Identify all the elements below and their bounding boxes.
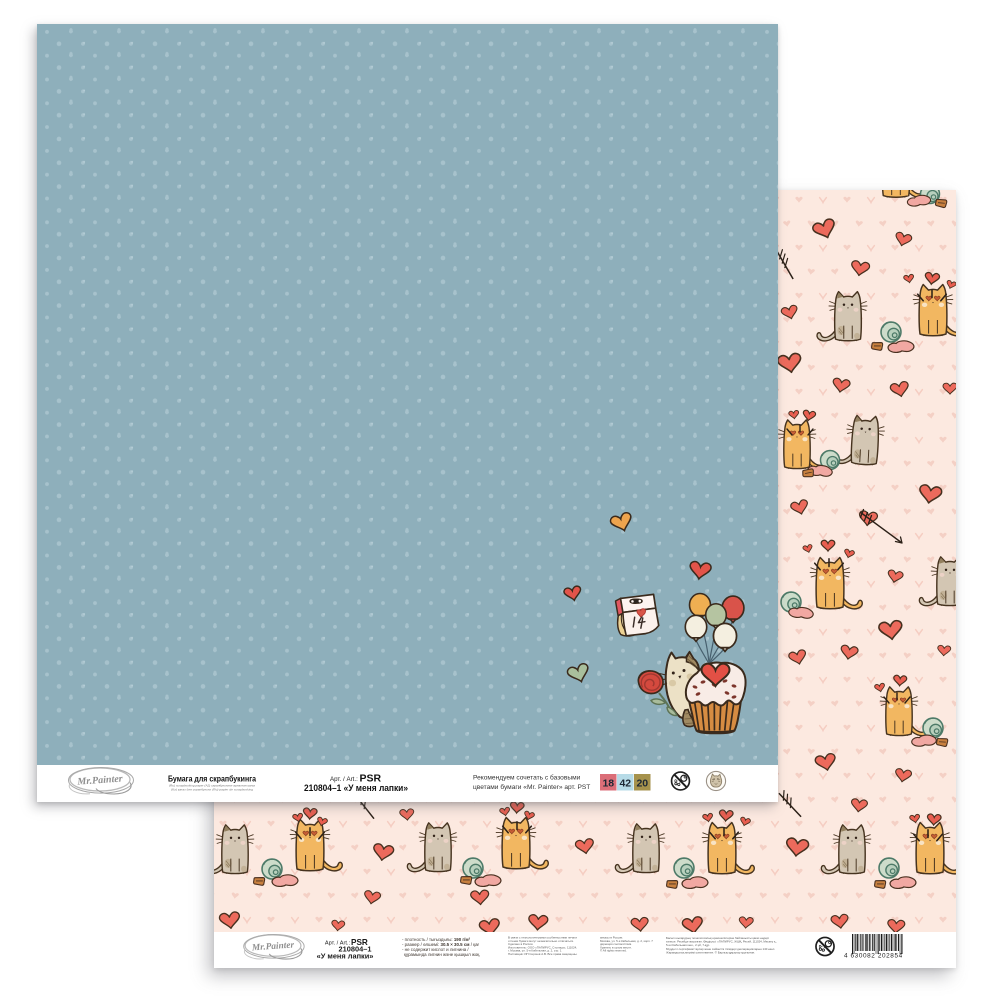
svg-text:құрамында лигнин және қышқыл ж: құрамында лигнин және қышқыл жоқ. (404, 952, 480, 957)
svg-text:(Kz) қағаз для скрапбукинг (Ru: (Kz) қағаз для скрапбукинг (Ru) papier d… (171, 787, 253, 791)
svg-text:42: 42 (619, 778, 631, 790)
svg-text:цветами бумаги «Mr. Painter» а: цветами бумаги «Mr. Painter» арт. PST (473, 783, 590, 791)
svg-text:4 630082 202854: 4 630082 202854 (844, 953, 903, 960)
svg-text:20: 20 (636, 778, 648, 790)
svg-text:Поставщик: ИП Сергеев А.В. Все: Поставщик: ИП Сергеев А.В. Все права защ… (508, 952, 578, 956)
svg-text:Жарамдылық мерзімі шектелмеген: Жарамдылық мерзімі шектелмеген. © Барлық… (666, 950, 755, 954)
svg-text:Рекомендуем сочетать с базовым: Рекомендуем сочетать с базовыми (473, 774, 581, 782)
svg-text:«У меня лапки»: «У меня лапки» (317, 952, 374, 961)
svg-text:© All rights reserved.: © All rights reserved. (600, 949, 627, 953)
svg-text:18: 18 (602, 778, 614, 790)
svg-text:210804–1 «У меня лапки»: 210804–1 «У меня лапки» (304, 783, 408, 794)
svg-text:Бумага для скрапбукинга: Бумага для скрапбукинга (168, 774, 256, 784)
